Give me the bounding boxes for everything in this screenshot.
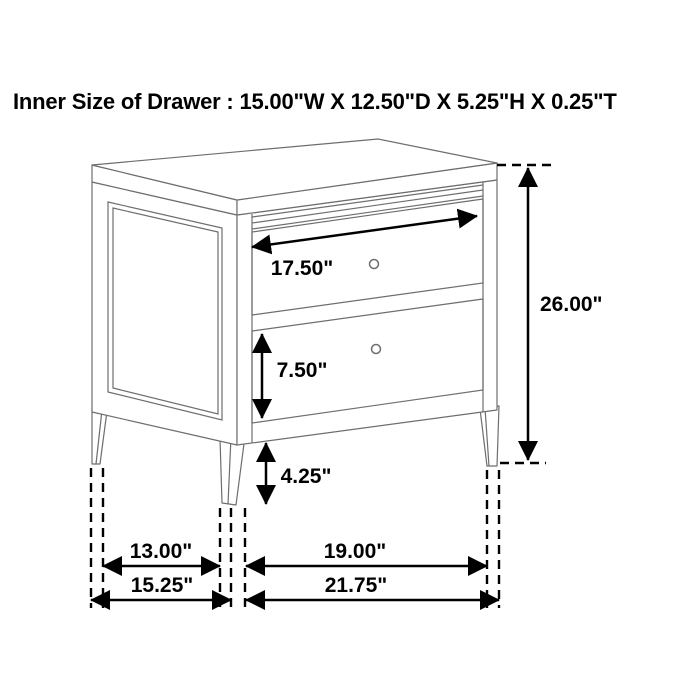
dimension-side-leg-span: 13.00": [103, 540, 220, 566]
leg-height-label: 4.25": [281, 465, 332, 488]
dimension-overall-width: 21.75": [246, 574, 499, 600]
overall-height-label: 26.00": [540, 293, 603, 316]
side-leg-span-label: 13.00": [130, 540, 193, 563]
overall-depth-label: 15.25": [131, 574, 194, 597]
dimension-overall-depth: 15.25": [91, 574, 231, 600]
front-right-leg: [480, 406, 499, 466]
front-leg-span-label: 19.00": [324, 540, 387, 563]
furniture-diagram: 17.50" 26.00" 7.50" 4.25": [0, 0, 700, 700]
diagram-page: Inner Size of Drawer : 15.00"W X 12.50"D…: [0, 0, 700, 700]
front-left-leg: [220, 436, 245, 505]
dimension-overall-height: 26.00": [497, 165, 603, 463]
side-panel: [92, 182, 237, 445]
dimension-front-leg-span: 19.00": [246, 540, 487, 566]
nightstand-drawing: [92, 139, 499, 505]
bottom-drawer-height-label: 7.50": [277, 359, 328, 382]
drawer-width-label: 17.50": [271, 257, 334, 280]
overall-width-label: 21.75": [325, 574, 388, 597]
dimension-leg-height: 4.25": [266, 443, 331, 504]
